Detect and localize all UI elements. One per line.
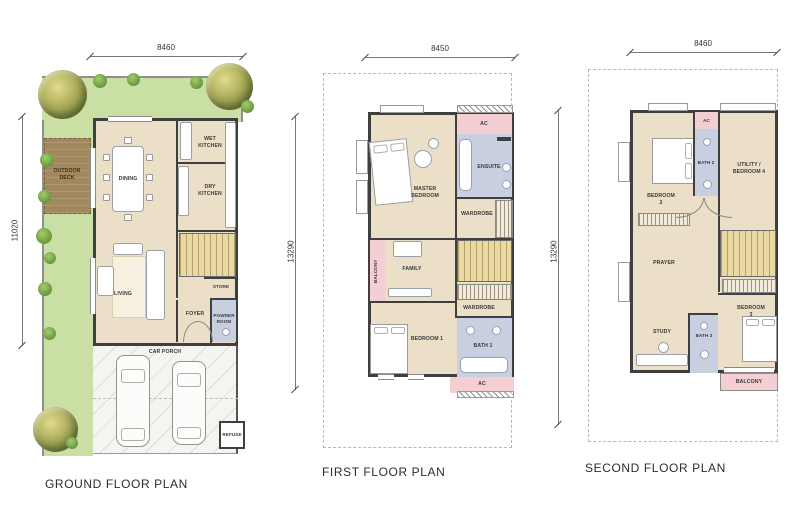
loveseat [113,243,143,255]
first-floor-title: FIRST FLOOR PLAN [322,465,445,479]
window [90,148,96,208]
dining-chair [146,174,153,181]
bathtub [460,357,508,373]
bush [43,327,56,340]
ac-label: AC [471,121,497,128]
toilet [703,180,712,189]
second-stairs [720,230,776,277]
basin [466,326,475,335]
bedroom-1-label: BEDROOM 1 [410,336,444,343]
bush [44,252,56,264]
ac-bottom-label: AC [469,381,495,388]
ground-width-dim: 8460 [141,43,191,52]
window [90,258,96,314]
refuse-label: REFUSE [219,432,245,438]
bush [127,73,140,86]
kitchen-island [178,166,189,216]
bush [36,228,52,244]
basin [502,180,511,189]
bath-1-label: BATH 1 [468,343,498,350]
desk [636,354,688,366]
window [408,374,424,380]
bed [742,316,777,362]
bedroom1-wall [370,301,457,303]
ottoman [414,150,432,168]
bush [190,76,203,89]
wet-kitchen-counter [180,122,192,160]
dining-chair [103,154,110,161]
car [116,355,150,447]
wardrobe-wall [457,197,514,199]
second-height-dim: 13290 [550,229,559,275]
wardrobe-unit [495,200,513,238]
awning-hatch [457,105,513,113]
kitchen-wall-counter [225,122,236,228]
window-bay [618,262,630,302]
dining-chair [103,174,110,181]
ensuite-label: ENSUITE [472,164,506,171]
dining-chair [146,194,153,201]
bath1-wall [457,316,514,318]
window-bay [720,103,776,111]
car-porch [93,346,238,454]
bath-2-label: BATH 2 [691,160,721,166]
bush [241,100,254,113]
stairs-wall-top [178,230,237,232]
first-height-dim: 13290 [287,229,296,275]
store-label: STORE [206,284,236,290]
second-floor-title: SECOND FLOOR PLAN [585,461,726,475]
dimension-line-width [630,52,777,53]
dining-label: DINING [115,176,141,183]
dining-chair [103,194,110,201]
car [172,361,206,445]
stairs-wall-left [176,230,178,298]
side-table [428,138,439,149]
living-label: LIVING [108,291,138,298]
ac-label: AC [695,118,718,124]
bush [66,437,78,449]
prayer-label: PRAYER [649,260,679,267]
dining-chair [124,214,132,221]
balcony-label: BALCONY [373,252,382,290]
bush [40,153,54,167]
study-label: STUDY [648,329,676,336]
wardrobe-master-label: WARDROBE [458,211,496,218]
window-bay [618,142,630,182]
family-label: FAMILY [398,266,426,273]
wet-kitchen-label: WET KITCHEN [196,136,224,149]
wardrobe-unit [722,279,776,293]
awning-hatch [457,391,514,398]
dimension-line-width [90,56,243,57]
bush [38,190,51,203]
dimension-line-width [365,57,515,58]
powder-room-label: POWDER ROOM [211,313,237,324]
basin [700,322,708,330]
ground-stairs [179,233,236,277]
wardrobe-unit [457,284,512,300]
foyer-wall [176,300,178,342]
porch-dashed-line [93,398,238,399]
dimension-line-height [22,116,23,346]
bathtub [459,139,472,191]
stairs-wall [718,232,720,292]
wardrobe-1-label: WARDROBE [460,305,498,312]
floor-plans-canvas: OUTDOOR DECK DINING WET KITCHEN DRY KITC… [0,0,800,511]
family-sofa [393,241,422,257]
toilet [700,350,709,359]
first-width-dim: 8450 [415,44,465,53]
window-bay [356,180,368,214]
dry-kitchen-label: DRY KITCHEN [196,184,224,197]
bath-3-label: BATH 3 [689,333,719,339]
toilet [222,328,230,336]
car-porch-label: CAR PORCH [148,349,182,356]
sofa [146,250,165,320]
window-bay [356,140,368,174]
foyer-label: FOYER [182,311,208,318]
bedroom3-wall [718,293,778,295]
utility-bedroom4-label: UTILITY / BEDROOM 4 [725,162,773,175]
bush [38,282,52,296]
toilet [492,326,501,335]
tv-console [388,288,432,297]
dining-chair [124,137,132,144]
ensuite-wall-left [455,114,457,238]
living-rug [112,256,146,318]
balcony-label: BALCONY [726,379,772,386]
second-width-dim: 8460 [678,39,728,48]
window-bay [648,103,688,111]
window-bay [380,105,424,113]
bed [652,138,695,184]
bush [93,74,107,88]
stairs-wall [455,240,457,318]
outdoor-deck-label: OUTDOOR DECK [46,168,88,181]
dining-chair [146,154,153,161]
ground-height-dim: 11020 [11,208,20,254]
first-stairs [457,240,512,282]
window [378,374,394,380]
bedroom-2-label: BEDROOM 2 [645,193,677,206]
basin [703,138,711,146]
master-bedroom-label: MASTER BEDROOM [404,186,446,199]
tree [38,70,87,119]
bed [370,324,408,374]
desk-chair [658,342,669,353]
window [108,116,152,122]
mirror [497,137,511,141]
store-wall [204,277,237,279]
ground-floor-title: GROUND FLOOR PLAN [45,477,188,491]
